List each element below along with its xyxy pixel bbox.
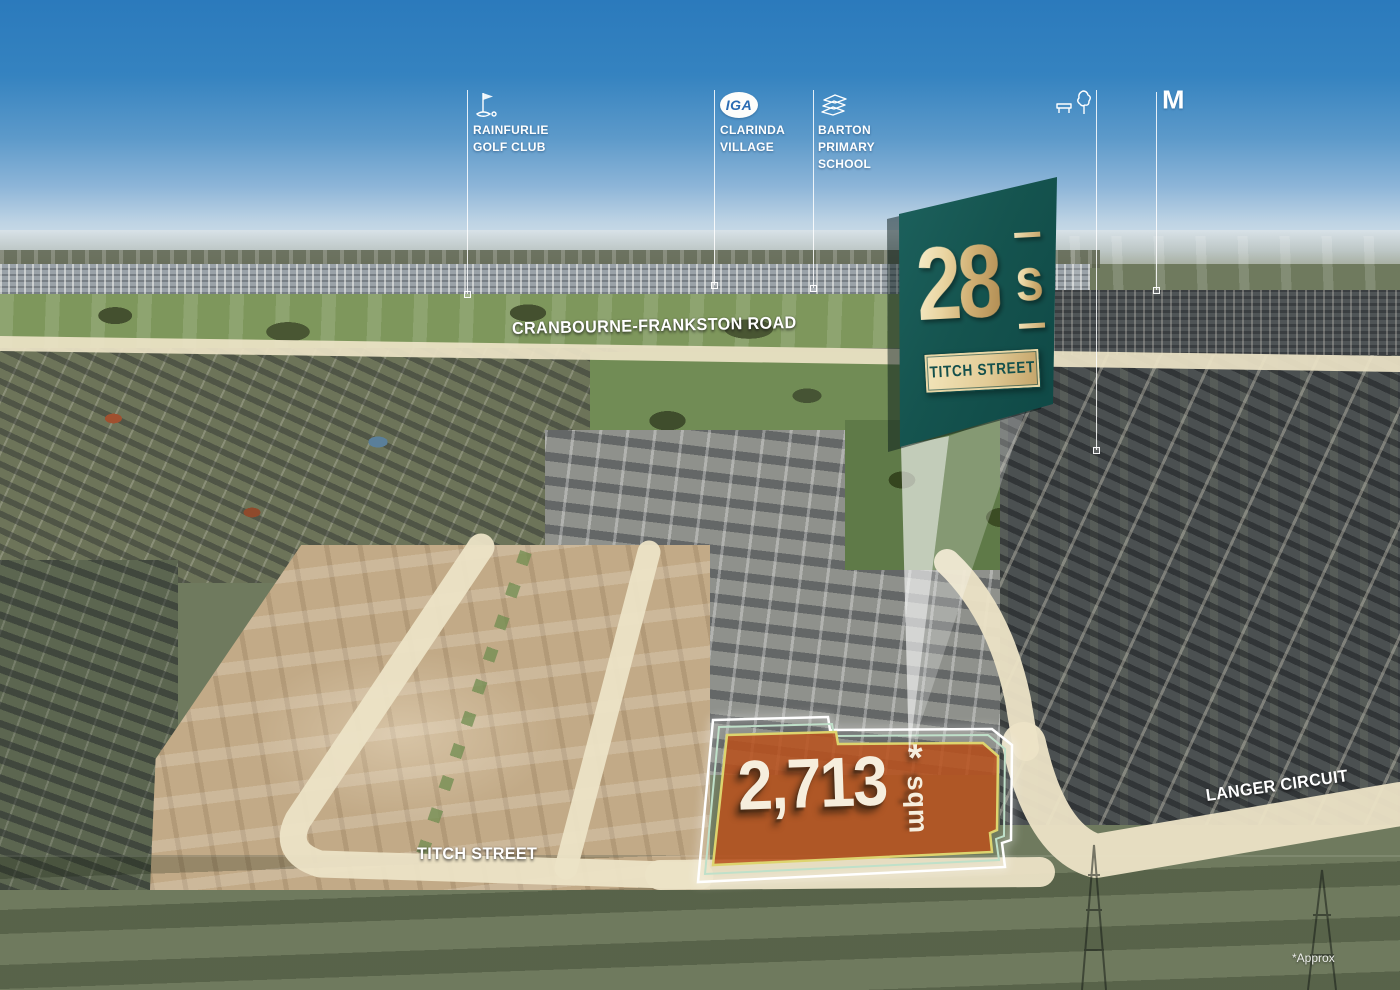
mcdonalds-m-logo: M — [1162, 86, 1185, 115]
marker-label-line: CLARINDA — [720, 122, 785, 139]
marker-label-line: SCHOOL — [818, 156, 875, 173]
marker-line — [467, 90, 468, 294]
footnote-approx: *Approx — [1292, 951, 1335, 965]
aerial-marketing-image: 2,713 * sqm 28 s TITCH STREET — [0, 0, 1400, 990]
marker-line — [714, 90, 715, 285]
banner-content: 28 s TITCH STREET — [892, 213, 1063, 441]
marker-label-line: GOLF CLUB — [473, 139, 549, 156]
development-banner: 28 s TITCH STREET — [880, 165, 1080, 460]
iga-logo: IGA — [720, 92, 758, 118]
park-bench-tree-icon — [1054, 88, 1094, 120]
marker-label-line: BARTON — [818, 122, 875, 139]
iga-logo-text: IGA — [726, 97, 752, 113]
banner-plaque: TITCH STREET — [923, 348, 1041, 394]
suffix-underbar — [1019, 323, 1045, 329]
marker-line — [813, 90, 814, 288]
banner-plaque-text: TITCH STREET — [929, 359, 1035, 383]
marker-label-line: VILLAGE — [720, 139, 785, 156]
light-beam — [0, 0, 1400, 990]
marker-label-line: PRIMARY — [818, 139, 875, 156]
banner-suffix: s — [1014, 255, 1045, 306]
banner-number: 28 — [914, 234, 1001, 334]
golf-flag-icon — [474, 90, 502, 120]
marker-line — [1156, 92, 1157, 290]
school-books-icon — [818, 90, 850, 120]
marker-line — [1096, 90, 1097, 450]
suffix-overbar — [1014, 232, 1040, 238]
marker-label-line: RAINFURLIE — [473, 122, 549, 139]
titch-street-label: TITCH STREET — [417, 844, 537, 864]
